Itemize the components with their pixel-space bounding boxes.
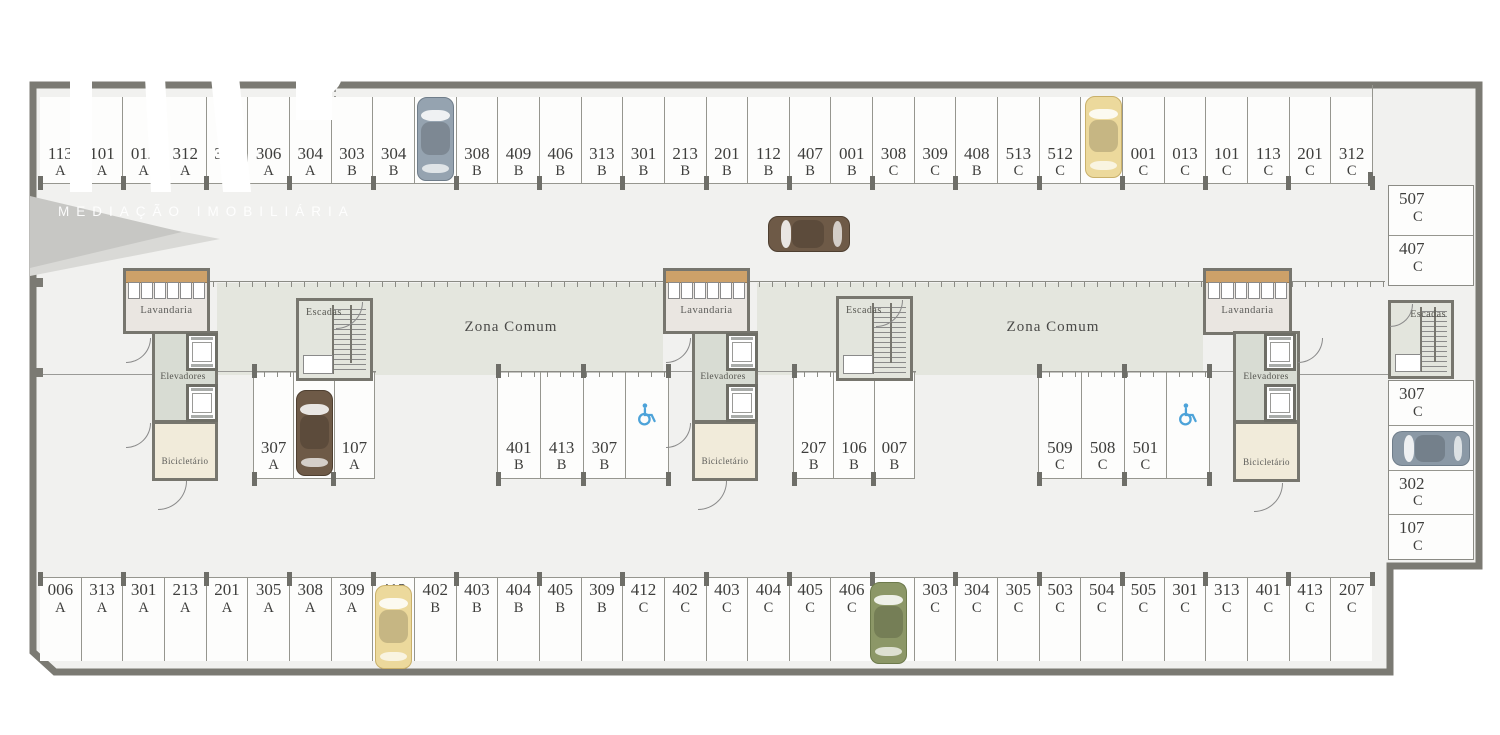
spot-label: 503C [1047,580,1073,616]
wall-stub [496,472,501,486]
wall-stub [1207,472,1212,486]
spot-label: 501C [1133,438,1159,474]
elevator-shaft [1264,384,1296,422]
parking-spot-505-C: 505C [1122,578,1164,661]
parking-spot-503-C: 503C [1039,578,1081,661]
parking-spot-302-C: 302C [1389,470,1473,515]
wall-stub [792,364,797,378]
parking-spot-213-A: 213A [164,578,206,661]
wall-stub [454,176,459,190]
wall-stub [454,572,459,586]
wall-stub [1037,176,1042,190]
elevator-shaft [726,384,758,422]
wall-stub [496,364,501,378]
wall-stub [252,472,257,486]
parking-spot-113-C: 113C [1247,97,1289,183]
wall-stub [287,176,292,190]
spot-label: 509C [1047,438,1073,474]
parking-spot-308-C: 308C [872,97,914,183]
parking-spot-408-B: 408B [955,97,997,183]
parking-spot-312-A: 312A [164,97,206,183]
stair-landing [303,355,333,374]
parking-spot-308-B: 308B [456,97,498,183]
watermark-logo-stroke [70,0,92,192]
spot-label: 308A [298,580,324,616]
wall-stub [38,176,43,190]
spot-label: 013C [1172,144,1198,180]
wall-stub [371,572,376,586]
parking-spot-304-C: 304C [955,578,997,661]
spot-label: 106B [841,438,867,474]
parking-spot-213-B: 213B [664,97,706,183]
stair-landing [843,355,873,374]
wall-stub [371,176,376,190]
zona-comum-area-left [217,283,663,375]
parking-spot-313-A: 313A [81,578,123,661]
spot-label: 301B [631,144,657,180]
spot-label: 504C [1089,580,1115,616]
parking-spot-301-B: 301B [622,97,664,183]
laundry-room: Lavandaria [123,268,210,334]
wall-stub [1122,364,1127,378]
wall-stub [620,572,625,586]
spot-label: 101C [1214,144,1240,180]
spot-label: 313A [89,580,115,616]
parking-spot-201-B: 201B [706,97,748,183]
spot-label: 304C [964,580,990,616]
spot-label: 308C [881,144,907,180]
parking-spot-001-C: 001C [1122,97,1164,183]
spot-label: 307A [261,438,287,474]
spot-label: 113C [1256,144,1281,180]
car-spot-305-b [417,97,454,181]
right-parking-column-upper: 507C407C [1388,185,1474,286]
laundry-room: Lavandaria [1203,268,1292,335]
parking-spot-501-C: 501C [1124,372,1167,478]
parking-spot-306-A: 306A [247,97,289,183]
wall-stub [1286,176,1291,190]
spot-label: 201C [1297,144,1323,180]
spot-label: 513C [1006,144,1032,180]
wall-stub [38,572,43,586]
spot-label: 507C [1399,189,1473,225]
parking-spot-407-B: 407B [789,97,831,183]
spot-label: 406B [547,144,573,180]
wall-stub [1286,572,1291,586]
spot-label: 301A [131,580,157,616]
elevator-shaft [186,384,218,422]
parking-spot-401-B: 401B [498,372,540,478]
wall-stub [1203,572,1208,586]
parking-spot-accessible [1166,372,1209,478]
parking-spot-405-C: 405C [789,578,831,661]
spot-label: 402C [672,580,698,616]
parking-spot-007-B: 007B [874,372,914,478]
wall-stub [1122,472,1127,486]
spot-label: 401C [1256,580,1282,616]
spot-label: 304A [298,144,324,180]
spot-label: 403C [714,580,740,616]
car-spot-412-b [375,585,412,669]
spot-label: 207C [1339,580,1365,616]
wall-stub [787,176,792,190]
spot-label: 313B [589,144,615,180]
parking-spot-107-A: 107A [334,372,374,478]
parking-spot-303-C: 303C [914,578,956,661]
parking-spot-406-C: 406C [830,578,872,661]
wall-stub [1207,364,1212,378]
parking-spot-304-B: 304B [372,97,414,183]
parking-spot-401-C: 401C [1247,578,1289,661]
spot-label: 305A [256,580,282,616]
spot-label: 308B [464,144,490,180]
wall-stub [620,176,625,190]
watermark-subtitle: MEDIAÇÃO IMOBILIÁRIA [58,204,355,219]
wall-stub [1203,176,1208,190]
parking-spot-512-C: 512C [1039,97,1081,183]
parking-cluster-b1: 401B413B307B [497,372,669,479]
spot-label: 405B [547,580,573,616]
spot-label: 305C [1006,580,1032,616]
wall-stub [792,472,797,486]
spot-label: 201A [214,580,240,616]
parking-spot-404-B: 404B [497,578,539,661]
parking-spot-305-A: 305A [247,578,289,661]
spot-label: 408B [964,144,990,180]
spot-label: 307B [592,438,618,474]
parking-spot-308-A: 308A [289,578,331,661]
elevator-shaft [726,333,758,371]
wall-stub [1037,364,1042,378]
wall-stub [704,572,709,586]
parking-spot-307-A: 307A [254,372,293,478]
wall-stub [1037,572,1042,586]
parking-spot-301-A: 301A [122,578,164,661]
spot-label: 402B [422,580,448,616]
parking-spot-402-B: 402B [414,578,456,661]
parking-spot-509-C: 509C [1039,372,1081,478]
spot-label: 404B [506,580,532,616]
parking-cluster-c: 509C508C501C [1038,372,1210,479]
parking-spot-313-B: 313B [581,97,623,183]
parking-spot-407-C: 407C [1389,235,1473,285]
spot-label: 505C [1131,580,1157,616]
parking-spot-406-B: 406B [539,97,581,183]
parking-spot-101-C: 101C [1205,97,1247,183]
spot-label: 306A [256,144,282,180]
wall-stub [953,176,958,190]
spot-label: 407C [1399,239,1473,275]
elevator-shaft [1264,333,1296,371]
wall-stub [1370,572,1375,586]
wall-stub [787,572,792,586]
spot-label: 302C [1399,474,1473,510]
parking-spot-301-C: 301C [1164,578,1206,661]
wall-stub [287,572,292,586]
wheelchair-icon [635,402,660,432]
wall-stub [1120,176,1125,190]
parking-spot-001-B: 001B [830,97,872,183]
wall-stub [121,176,126,190]
floor-plan-canvas: 113A101A012A312A302A306A304A303B304B305B… [0,0,1500,735]
parking-spot-405-B: 405B [539,578,581,661]
spot-label: 309B [589,580,615,616]
wheelchair-icon [1176,402,1201,432]
bike-storage: Bicicletário [152,421,218,481]
wall-stub [121,572,126,586]
spot-label: 304B [381,144,407,180]
parking-spot-313-C: 313C [1205,578,1247,661]
spot-label: 413C [1297,580,1323,616]
parking-spot-309-C: 309C [914,97,956,183]
spot-label: 213B [672,144,698,180]
spot-label: 303C [922,580,948,616]
wall-stub [953,572,958,586]
elevator-shaft [186,333,218,371]
parking-spot-409-B: 409B [497,97,539,183]
parking-spot-006-A: 006A [40,578,81,661]
parking-spot-207-B: 207B [794,372,833,478]
spot-label: 207B [801,438,827,474]
wall-stub [204,176,209,190]
wall-stub [581,364,586,378]
parking-spot-403-C: 403C [706,578,748,661]
spot-label: 107A [342,438,368,474]
stair-landing [1395,354,1421,372]
right-parking-column-lower: 307C007C302C107C [1388,380,1474,560]
parking-spot-307-C: 307C [1389,381,1473,425]
bike-storage: Bicicletário [692,421,758,481]
spot-label: 101A [89,144,115,180]
spot-label: 512C [1047,144,1073,180]
parking-spot-201-C: 201C [1289,97,1331,183]
parking-spot-013-C: 013C [1164,97,1206,183]
parking-spot-507-C: 507C [1389,186,1473,235]
zona-comum-label-left: Zona Comum [465,319,558,336]
parking-cluster-b2: 207B106B007B [793,372,915,479]
car-spot-207-a [296,390,333,476]
wall-stub [666,364,671,378]
spot-label: 401B [506,438,532,474]
spot-label: 405C [797,580,823,616]
parking-spot-307-B: 307B [583,372,626,478]
spot-label: 412C [631,580,657,616]
wall-stub [1037,472,1042,486]
bike-storage: Bicicletário [1233,421,1300,482]
spot-label: 407B [797,144,823,180]
parking-spot-309-B: 309B [581,578,623,661]
bottom-parking-row: 006A313A301A213A201A305A308A309A412B402B… [40,577,1372,661]
parking-spot-402-C: 402C [664,578,706,661]
parking-spot-106-B: 106B [833,372,873,478]
spot-label: 508C [1090,438,1116,474]
wall-stub [537,572,542,586]
washing-machines [668,282,745,299]
wall-stub [252,364,257,378]
glazing-line [123,281,1385,287]
spot-label: 312A [173,144,199,180]
spot-label: 406C [839,580,865,616]
parking-spot-412-C: 412C [622,578,664,661]
spot-label: 309C [922,144,948,180]
car-spot-409-c [870,582,907,664]
watermark-logo-stroke [302,55,342,95]
car-aisle [768,216,850,252]
parking-spot-413-C: 413C [1289,578,1331,661]
parking-spot-508-C: 508C [1081,372,1124,478]
spot-label: 404C [756,580,782,616]
wall-stub [581,472,586,486]
spot-label: 309A [339,580,365,616]
wall-stub [204,572,209,586]
spot-label: 007B [882,438,908,474]
spot-label: 409B [506,144,532,180]
car-spot-007-c [1392,431,1470,466]
parking-spot-403-B: 403B [456,578,498,661]
wall-stub [704,176,709,190]
spot-label: 312C [1339,144,1365,180]
spot-label: 006A [48,580,74,616]
parking-spot-201-A: 201A [206,578,248,661]
parking-spot-303-B: 303B [331,97,373,183]
parking-spot-207-C: 207C [1330,578,1372,661]
spot-label: 213A [173,580,199,616]
zona-comum-area-right [757,283,1203,375]
spot-label: 112B [756,144,781,180]
wall-stub [537,176,542,190]
parking-spot-305-C: 305C [997,578,1039,661]
parking-spot-404-C: 404C [747,578,789,661]
wall-stub [1120,572,1125,586]
spot-label: 313C [1214,580,1240,616]
parking-spot-413-B: 413B [540,372,583,478]
spot-label: 413B [549,438,575,474]
spot-label: 201B [714,144,740,180]
wall-stub [666,472,671,486]
washing-machines [1208,282,1287,299]
spot-label: 107C [1399,518,1473,554]
spot-label: 301C [1172,580,1198,616]
parking-spot-309-A: 309A [331,578,373,661]
spot-label: 307C [1399,384,1473,420]
parking-spot-107-C: 107C [1389,514,1473,559]
wall-stub [331,472,336,486]
parking-spot-504-C: 504C [1080,578,1122,661]
spot-label: 001B [839,144,865,180]
spot-label: 403B [464,580,490,616]
wall-stub [870,176,875,190]
wall-stub [871,472,876,486]
car-spot-502-c [1085,96,1122,178]
parking-spot-accessible [625,372,668,478]
zona-comum-label-right: Zona Comum [1007,319,1100,336]
laundry-room: Lavandaria [663,268,750,334]
washing-machines [128,282,205,299]
spot-label: 001C [1131,144,1157,180]
parking-spot-513-C: 513C [997,97,1039,183]
parking-spot-112-B: 112B [747,97,789,183]
spot-label: 303B [339,144,365,180]
parking-spot-312-C: 312C [1330,97,1372,183]
